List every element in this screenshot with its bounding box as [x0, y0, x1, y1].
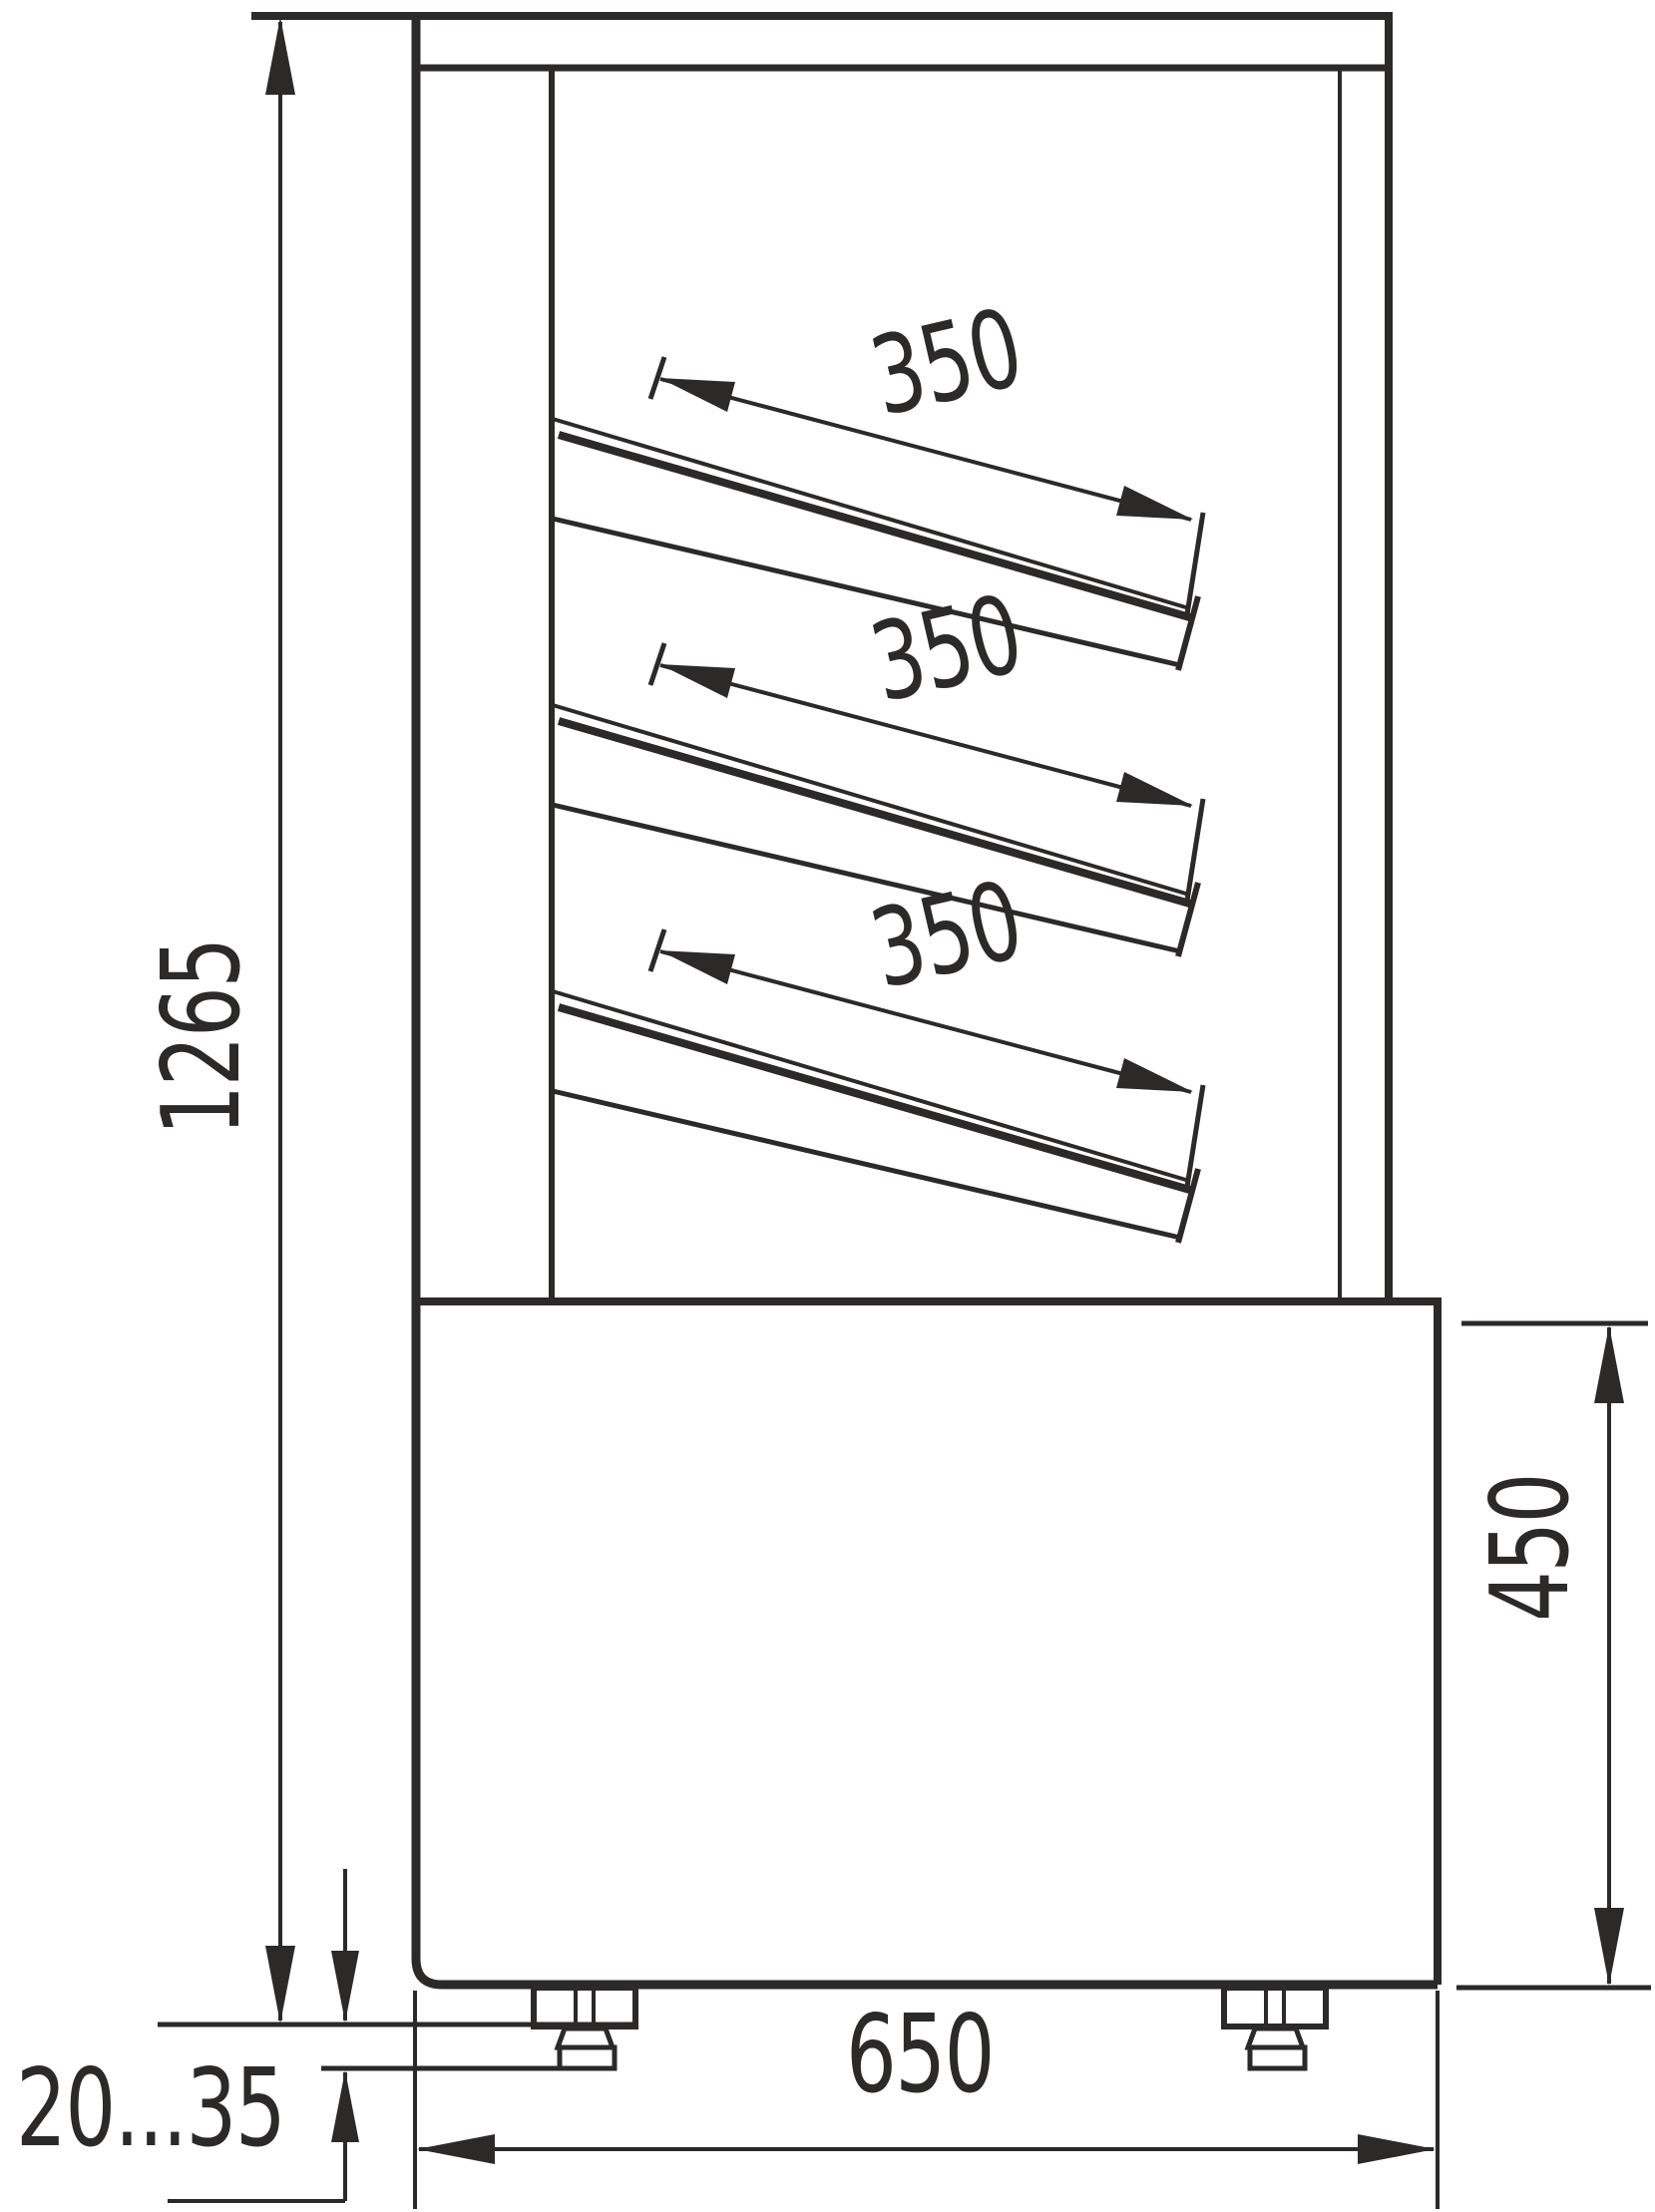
- shelf-bottom-line: [553, 1091, 1180, 1238]
- foot-plate: [534, 1988, 635, 2027]
- arrow-up-icon: [1594, 1325, 1624, 1403]
- shelf-bottom-line: [553, 805, 1180, 951]
- arrow-right-icon: [1116, 486, 1193, 520]
- foot-pad: [560, 2047, 615, 2068]
- base-height-dimension: 450: [1456, 1323, 1651, 1988]
- arrow-right-icon: [1116, 1058, 1193, 1092]
- arrow-down-icon: [1594, 1908, 1624, 1986]
- shelf-board-line: [559, 1007, 1193, 1191]
- shelf-glass-line: [553, 991, 1189, 1181]
- shelf-depth-label: 350: [860, 286, 1032, 441]
- arrow-right-icon: [1116, 772, 1193, 806]
- shelf-board-line: [559, 435, 1193, 618]
- shelf-glass-line: [553, 419, 1189, 608]
- foot-cone: [558, 2028, 613, 2047]
- overall-height-dimension: 1265: [140, 17, 295, 2024]
- arrow-up-icon: [331, 2070, 359, 2142]
- base-height-label: 450: [1468, 1474, 1593, 1622]
- foot-plate: [1224, 1988, 1326, 2027]
- shelves: 350350350: [553, 286, 1203, 1243]
- shelf: 350: [553, 859, 1203, 1243]
- arrow-left-icon: [659, 950, 735, 984]
- arrow-left-icon: [659, 378, 735, 412]
- base-depth-label: 650: [846, 1993, 994, 2117]
- adjustable-foot-left: [534, 1988, 635, 2068]
- overall-height-label: 1265: [140, 938, 264, 1135]
- shelf-bottom-line: [553, 519, 1180, 665]
- foot-pad: [1250, 2047, 1305, 2068]
- technical-drawing: 1265 350350350: [0, 0, 1655, 2212]
- arrow-up-icon: [265, 17, 295, 95]
- shelf-board-line: [559, 721, 1193, 905]
- leg-adjust-dimension: 20...35: [16, 1869, 359, 2201]
- arrow-left-icon: [659, 664, 735, 698]
- base-cabinet: [412, 1301, 1442, 1985]
- adjustable-foot-right: [1224, 1988, 1326, 2068]
- arrow-down-icon: [331, 1951, 359, 2023]
- shelf-glass-line: [553, 705, 1189, 895]
- arrow-right-icon: [1358, 2134, 1436, 2164]
- arrow-left-icon: [417, 2134, 495, 2164]
- leg-adjust-label: 20...35: [16, 2046, 284, 2171]
- foot-cone: [1248, 2028, 1303, 2047]
- arrow-down-icon: [265, 1946, 295, 2024]
